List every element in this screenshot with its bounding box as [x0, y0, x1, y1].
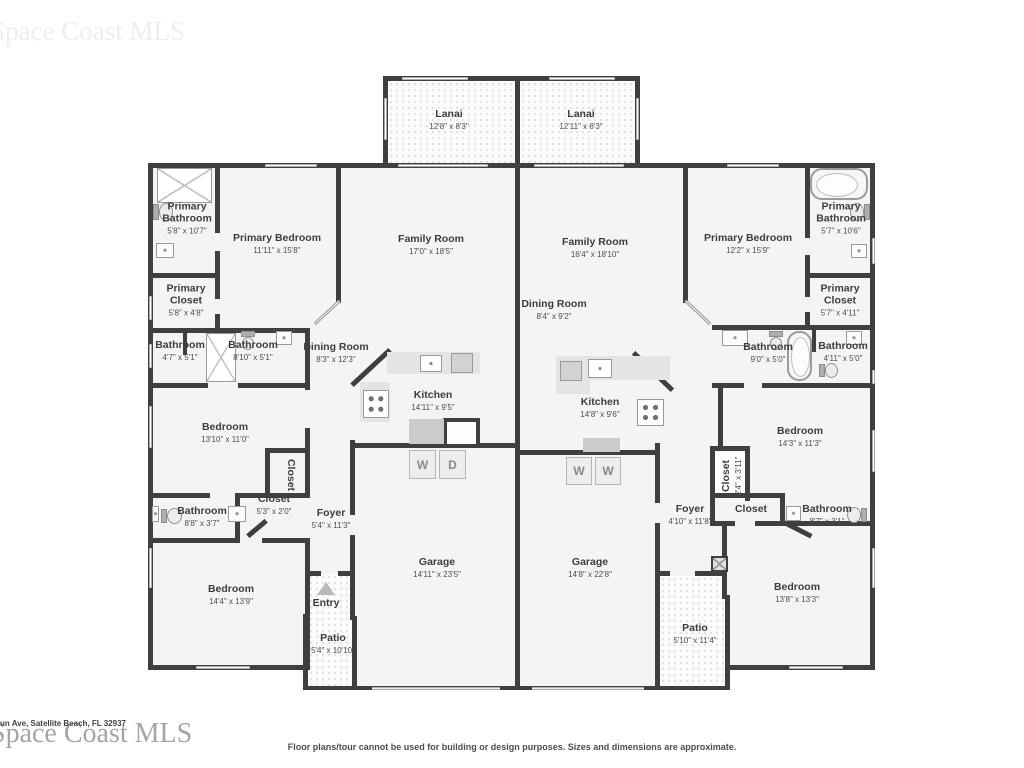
wall — [148, 538, 238, 543]
wall — [305, 571, 321, 576]
fridge-icon — [560, 361, 582, 381]
stove-icon — [637, 399, 664, 426]
room-label-entry: Entry — [313, 598, 340, 610]
room-label-primary-closet-left: Primary Closet5'8" x 4'8" — [154, 283, 218, 317]
room-label-garage-right: Garage14'8" x 22'8" — [568, 557, 612, 579]
window — [549, 77, 615, 80]
wall — [515, 76, 520, 167]
window — [196, 666, 250, 669]
sink-icon — [851, 244, 867, 258]
wall — [238, 383, 310, 388]
window — [402, 77, 468, 80]
disclaimer-text: Floor plans/tour cannot be used for buil… — [0, 742, 1024, 752]
window — [149, 296, 152, 320]
window — [384, 98, 387, 140]
wall — [265, 448, 270, 498]
wall — [338, 571, 355, 576]
room-label-family-room-left: Family Room17'0" x 18'5" — [398, 234, 464, 256]
room-label-patio-left: Patio5'4" x 10'10" — [311, 633, 355, 655]
kitchen-counter — [583, 438, 620, 452]
room-label-primary-bedroom-left: Primary Bedroom11'11" x 15'8" — [233, 233, 321, 255]
window — [149, 344, 152, 368]
watermark-top: Space Coast MLS — [0, 16, 185, 47]
water-heater-icon — [711, 556, 728, 572]
wall — [336, 163, 341, 303]
wall — [265, 448, 310, 453]
window — [636, 98, 639, 140]
window — [872, 430, 875, 472]
room-label-bathroom-small-right: Bathroom4'11" x 5'0" — [818, 341, 868, 363]
room-label-bedroom-mid-right: Bedroom14'3" x 11'3" — [777, 426, 823, 448]
wall — [655, 571, 670, 576]
bathtub-icon — [791, 337, 810, 377]
window — [265, 164, 317, 167]
room-label-garage-left: Garage14'11" x 23'5" — [413, 557, 461, 579]
washer-box: W — [409, 450, 436, 479]
room-label-bedroom-lower-left: Bedroom14'4" x 13'9" — [208, 584, 254, 606]
toilet-icon — [825, 363, 838, 378]
kitchen-sink-icon — [588, 359, 612, 378]
wall — [725, 595, 730, 690]
room-label-kitchen-left: Kitchen14'11" x 9'5" — [411, 390, 454, 412]
wall — [350, 440, 355, 515]
room-label-primary-bathroom-left: Primary Bathroom5'8" x 10'7" — [155, 201, 219, 235]
toilet-icon — [861, 508, 867, 522]
wall — [305, 538, 310, 670]
room-label-dining-room-right: Dining Room8'4" x 9'2" — [521, 299, 586, 321]
wall — [476, 418, 480, 447]
room-label-primary-closet-right: Primary Closet5'7" x 4'11" — [808, 283, 872, 317]
room-label-bathroom-small-left: Bathroom4'7" x 5'1" — [155, 340, 205, 362]
room-label-lanai-right: Lanai12'11" x 8'3" — [559, 109, 602, 131]
garage-door — [372, 687, 500, 690]
garage-door — [532, 687, 644, 690]
room-label-kitchen-right: Kitchen14'8" x 9'6" — [580, 397, 619, 419]
room-label-primary-bathroom-right: Primary Bathroom5'7" x 10'6" — [809, 201, 873, 235]
room-label-bathroom-lower-left: Bathroom8'8" x 3'7" — [177, 506, 227, 528]
window — [149, 406, 152, 448]
wall — [148, 273, 218, 278]
sink-icon — [786, 506, 801, 521]
vanity-sink-icon — [228, 506, 246, 522]
window — [872, 548, 875, 588]
wall — [350, 535, 355, 620]
washer-box: W — [595, 457, 621, 485]
floor-plan-page: Space Coast MLS Space Coast MLS un Ave, … — [0, 0, 1024, 768]
washer-box: W — [566, 457, 592, 485]
room-label-foyer-right: Foyer4'10" x 11'8" — [668, 504, 711, 526]
sink-icon — [276, 331, 292, 345]
wall — [660, 686, 730, 690]
kitchen-sink-icon — [420, 355, 442, 372]
wall — [762, 383, 875, 388]
window — [727, 164, 779, 167]
window — [872, 238, 875, 264]
stove-icon — [363, 390, 389, 418]
room-label-closet-vertical-right: Closet2'4" x 3'11" — [721, 457, 743, 496]
dryer-box: D — [439, 450, 466, 479]
wall — [710, 521, 735, 526]
window — [534, 164, 624, 167]
room-label-foyer-left: Foyer5'4" x 11'3" — [312, 508, 351, 530]
window — [789, 666, 843, 669]
fridge-icon — [451, 353, 473, 373]
sink-icon — [152, 506, 159, 522]
room-label-lanai-left: Lanai12'8" x 8'3" — [429, 109, 468, 131]
wall — [655, 523, 660, 686]
wall — [683, 163, 688, 303]
room-label-bedroom-lower-right: Bedroom13'8" x 13'3" — [774, 582, 820, 604]
room-label-closet-right: Closet — [735, 504, 767, 516]
room-label-family-room-right: Family Room16'4" x 18'10" — [562, 237, 628, 259]
room-label-bathroom-hall-left: Bathroom8'10" x 5'1" — [228, 340, 278, 362]
window — [872, 370, 875, 384]
entry-arrow-icon — [317, 582, 335, 595]
wall — [262, 538, 310, 543]
wall — [515, 163, 520, 690]
room-label-closet-left: Closet5'3" x 2'0" — [257, 494, 292, 516]
wall — [305, 428, 310, 498]
room-label-bedroom-mid-left: Bedroom13'10" x 11'0" — [201, 422, 249, 444]
room-label-closet-vertical-left: Closet — [284, 459, 296, 491]
bathtub-icon — [816, 173, 858, 197]
wall — [712, 383, 744, 388]
shower-icon — [157, 168, 212, 203]
room-label-bathroom-hall-right: Bathroom9'0" x 5'0" — [743, 342, 793, 364]
address-text: un Ave, Satellite Beach, FL 32937 — [0, 719, 126, 728]
wall — [718, 383, 723, 446]
kitchen-island — [409, 419, 444, 444]
room-label-patio-right: Patio5'10" x 11'4" — [673, 623, 716, 645]
wall — [148, 493, 210, 498]
room-label-primary-bedroom-right: Primary Bedroom12'2" x 15'9" — [704, 233, 792, 255]
utility-closet — [447, 422, 476, 444]
room-label-dining-room-left: Dining Room8'3" x 12'3" — [303, 342, 368, 364]
sink-icon — [156, 243, 174, 258]
wall — [812, 330, 816, 352]
kitchen-counter — [556, 380, 590, 394]
window — [149, 548, 152, 588]
wall — [148, 383, 208, 388]
wall — [303, 686, 360, 690]
window — [398, 164, 488, 167]
room-label-bathroom-lower-right: Bathroom8'7" x 3'1" — [802, 504, 852, 526]
wall — [805, 273, 875, 278]
